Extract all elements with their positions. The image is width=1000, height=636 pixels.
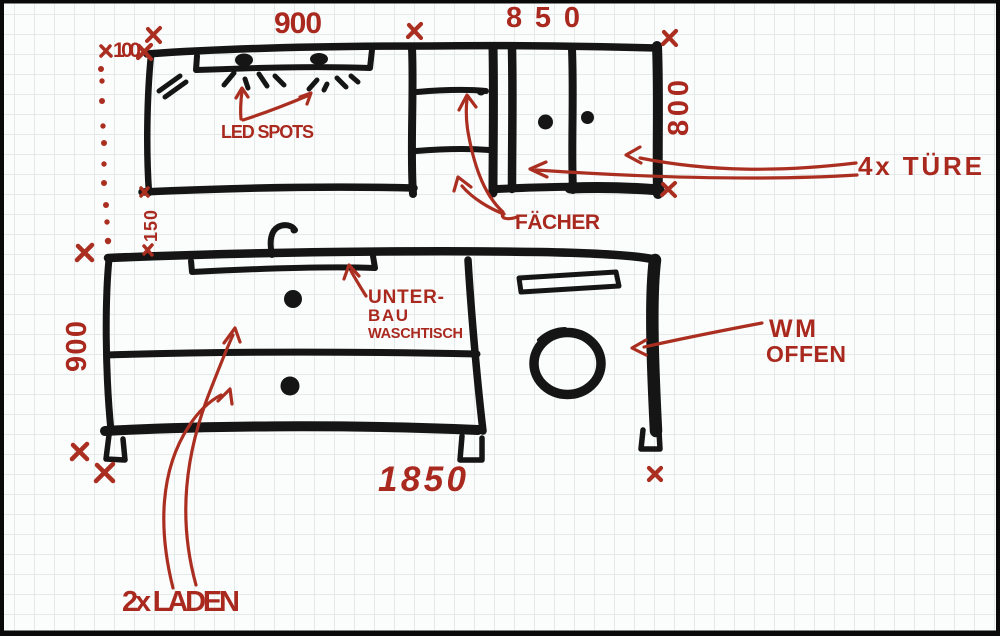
svg-text:FÄCHER: FÄCHER	[515, 211, 600, 234]
svg-text:2x LADEN: 2x LADEN	[122, 586, 240, 618]
svg-text:BAU: BAU	[368, 306, 408, 325]
svg-text:900: 900	[274, 7, 322, 40]
svg-text:100: 100	[113, 39, 141, 62]
svg-text:800: 800	[663, 80, 695, 136]
svg-text:WM: WM	[769, 315, 816, 343]
svg-text:UNTER-: UNTER-	[368, 287, 444, 308]
svg-text:150: 150	[141, 210, 161, 242]
svg-text:900: 900	[61, 321, 93, 372]
svg-text:WASCHTISCH: WASCHTISCH	[368, 326, 463, 342]
svg-text:850: 850	[506, 2, 580, 34]
svg-text:OFFEN: OFFEN	[766, 341, 846, 367]
svg-text:LED SPOTS: LED SPOTS	[221, 122, 314, 142]
